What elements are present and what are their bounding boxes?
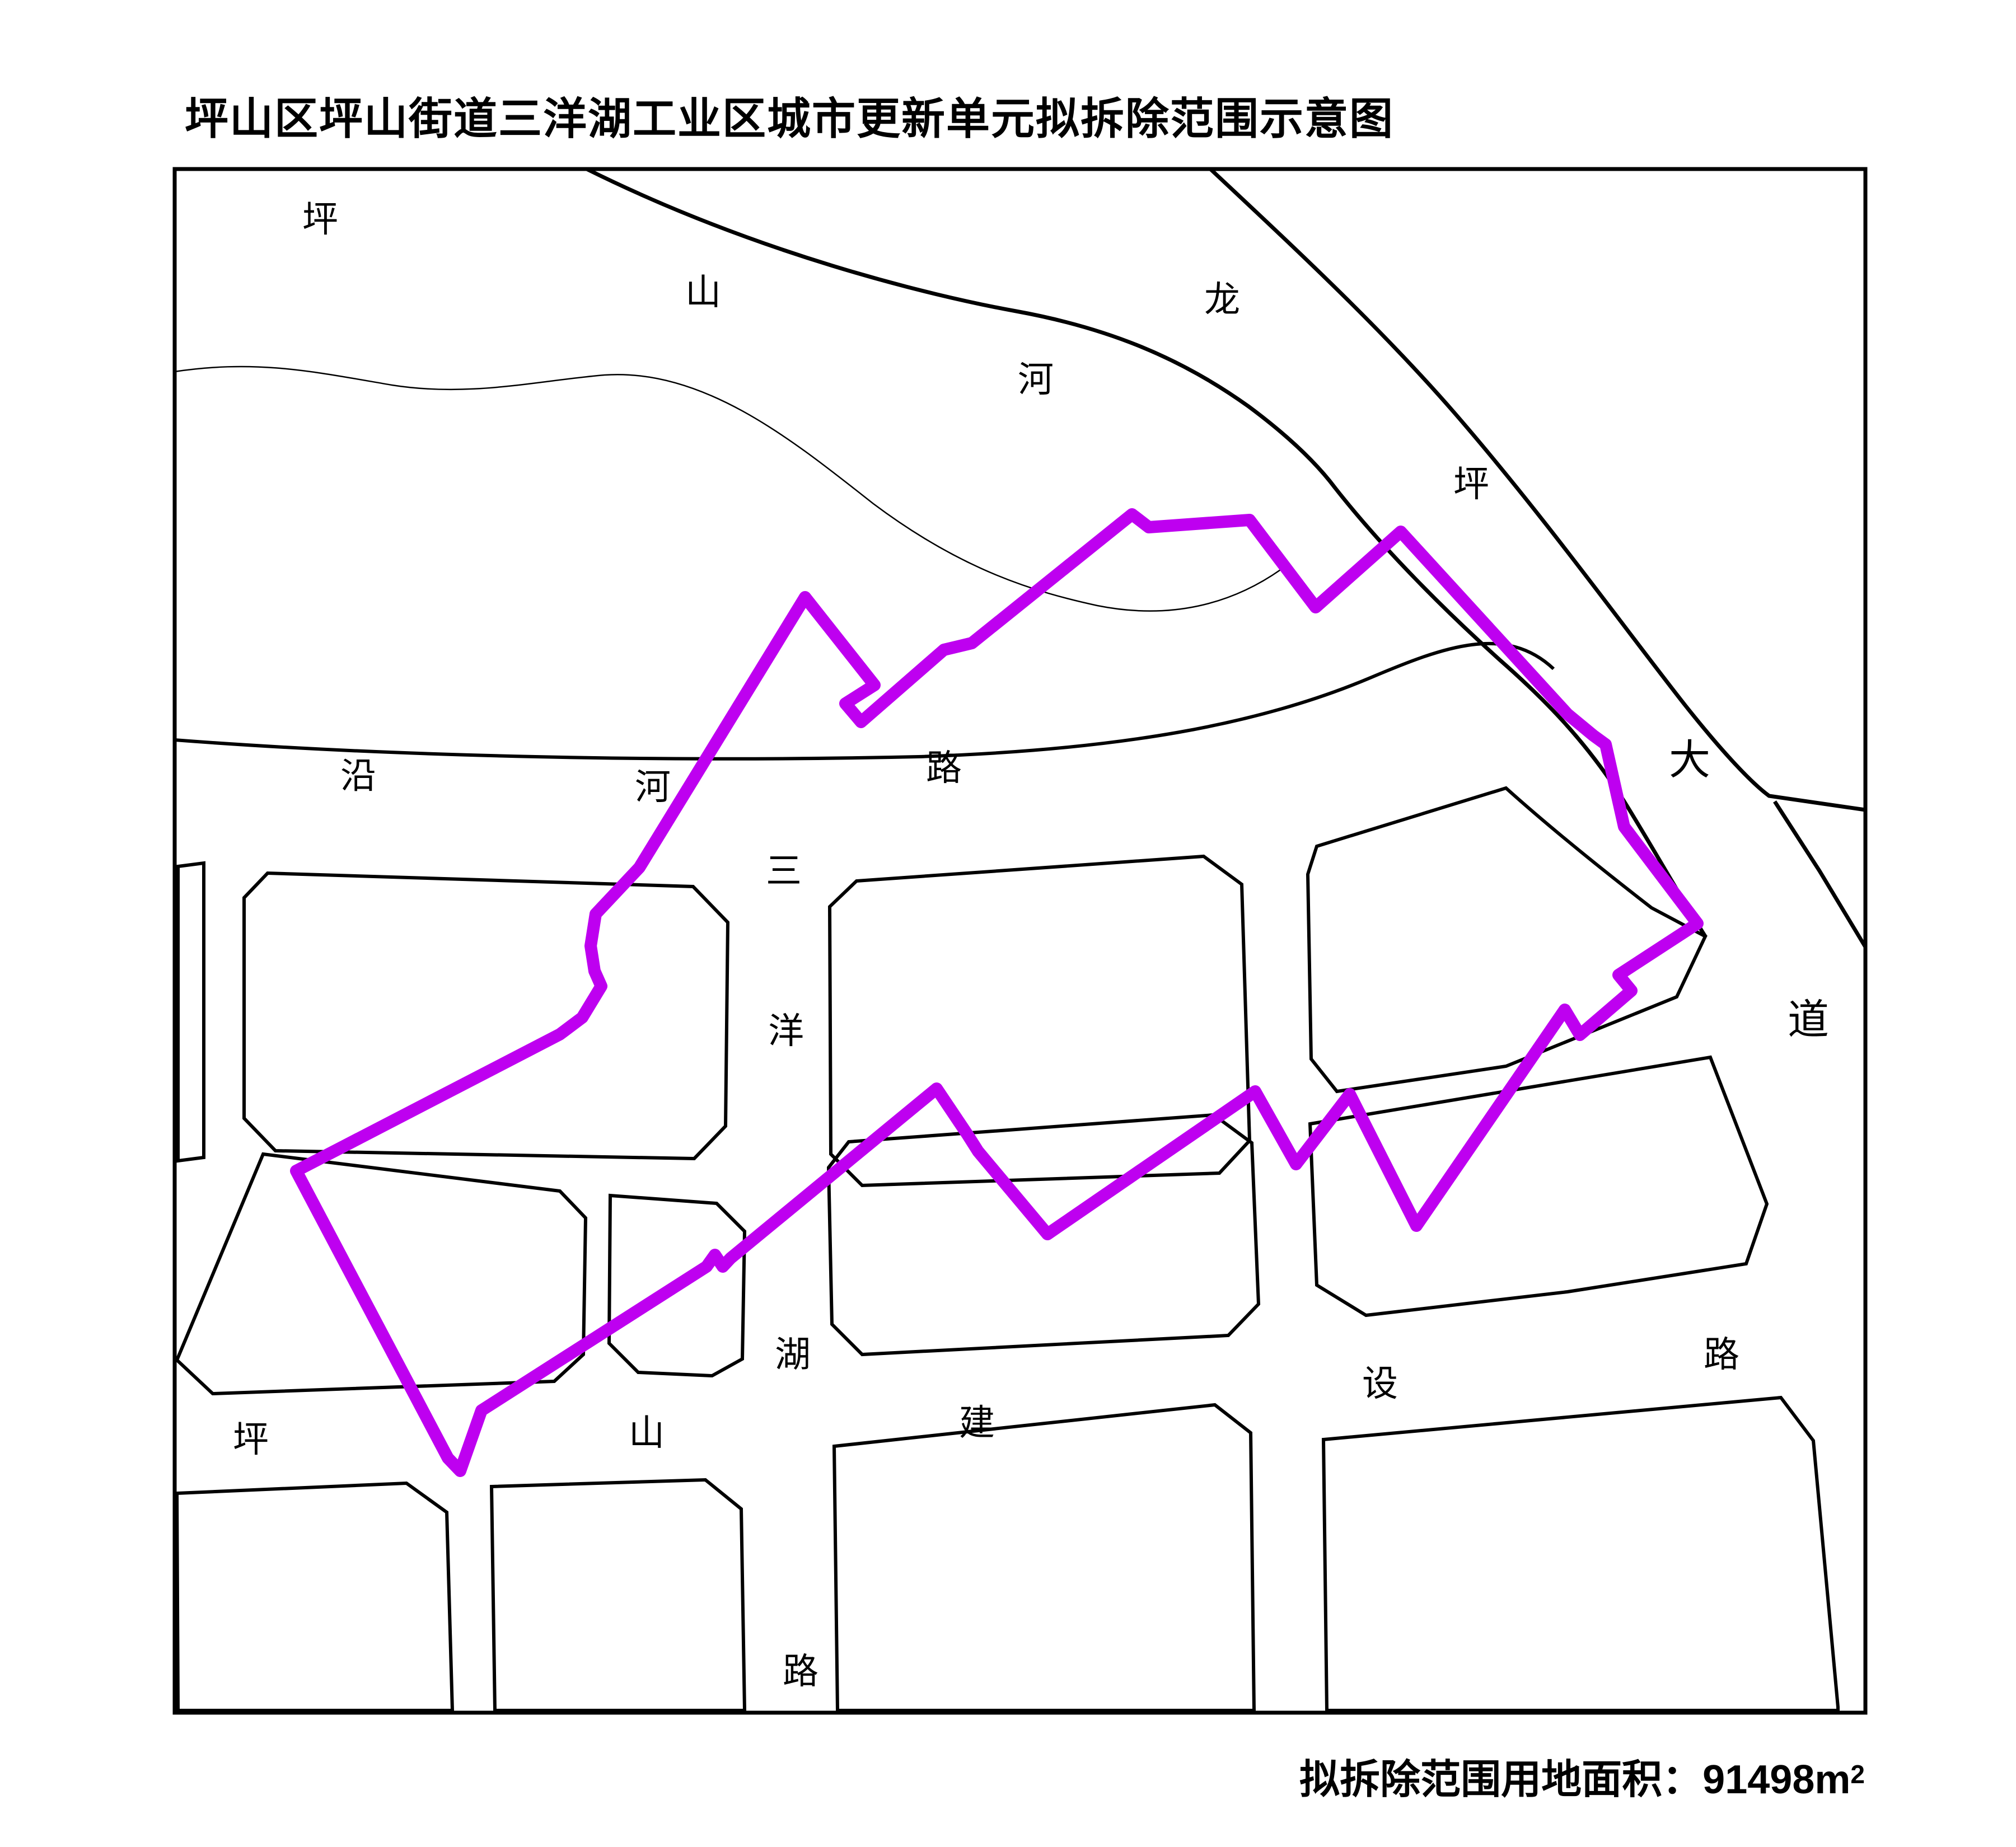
avenue-label-char: 龙 bbox=[1204, 282, 1240, 317]
map-canvas bbox=[0, 0, 2016, 1847]
area-note-value: 91498 bbox=[1702, 1757, 1814, 1802]
sanyanghu-road-label-char: 三 bbox=[766, 853, 802, 889]
avenue-corridor-edge bbox=[1775, 801, 1865, 947]
block-row2-west bbox=[177, 1154, 586, 1394]
avenue-east-edge bbox=[1210, 169, 1865, 810]
area-note-unit-exponent: 2 bbox=[1850, 1760, 1865, 1789]
demolition-boundary-polygon bbox=[296, 514, 1697, 1471]
south-road-label-char: 坪 bbox=[233, 1422, 269, 1457]
sanyanghu-road-label-char: 路 bbox=[783, 1653, 818, 1689]
south-road-label-char: 建 bbox=[959, 1405, 995, 1441]
block-row3-center bbox=[834, 1405, 1254, 1710]
river-label-char: 河 bbox=[1018, 362, 1054, 397]
south-road-label-char: 设 bbox=[1362, 1366, 1398, 1401]
river-water-line bbox=[175, 367, 1282, 611]
block-row1-left-sliver bbox=[178, 863, 204, 1161]
sanyanghu-road-label-char: 洋 bbox=[768, 1013, 804, 1049]
block-row2-east bbox=[1310, 1057, 1767, 1315]
river-bank-and-avenue-west-edge bbox=[587, 169, 1705, 936]
avenue-label-char: 大 bbox=[1669, 739, 1710, 781]
yanhe-road-label-char: 河 bbox=[635, 769, 671, 805]
yanhe-road-north-edge bbox=[175, 644, 1554, 759]
block-row3-west2 bbox=[492, 1480, 745, 1710]
area-note-unit: m bbox=[1814, 1757, 1850, 1802]
river-label-char: 山 bbox=[685, 274, 721, 310]
avenue-label-char: 坪 bbox=[1453, 466, 1489, 502]
block-row1-west bbox=[244, 873, 728, 1159]
area-note-label: 拟拆除范围用地面积： bbox=[1299, 1757, 1702, 1802]
river-label-char: 坪 bbox=[302, 201, 338, 237]
sanyanghu-road-label-char: 湖 bbox=[775, 1337, 811, 1372]
yanhe-road-label-char: 沿 bbox=[340, 758, 376, 794]
map-frame bbox=[175, 169, 1865, 1713]
map-page: 坪山区坪山街道三洋湖工业区城市更新单元拟拆除范围示意图 坪 山 河 龙 坪 大 … bbox=[0, 0, 2016, 1847]
page-title: 坪山区坪山街道三洋湖工业区城市更新单元拟拆除范围示意图 bbox=[185, 84, 1394, 147]
south-road-label-char: 山 bbox=[629, 1415, 665, 1451]
avenue-label-char: 道 bbox=[1788, 999, 1829, 1040]
yanhe-road-label-char: 路 bbox=[926, 750, 962, 786]
area-note: 拟拆除范围用地面积：91498m2 bbox=[1299, 1746, 1865, 1805]
block-row3-east bbox=[1323, 1398, 1838, 1710]
south-road-label-char: 路 bbox=[1704, 1337, 1739, 1372]
block-row3-west bbox=[177, 1483, 452, 1710]
